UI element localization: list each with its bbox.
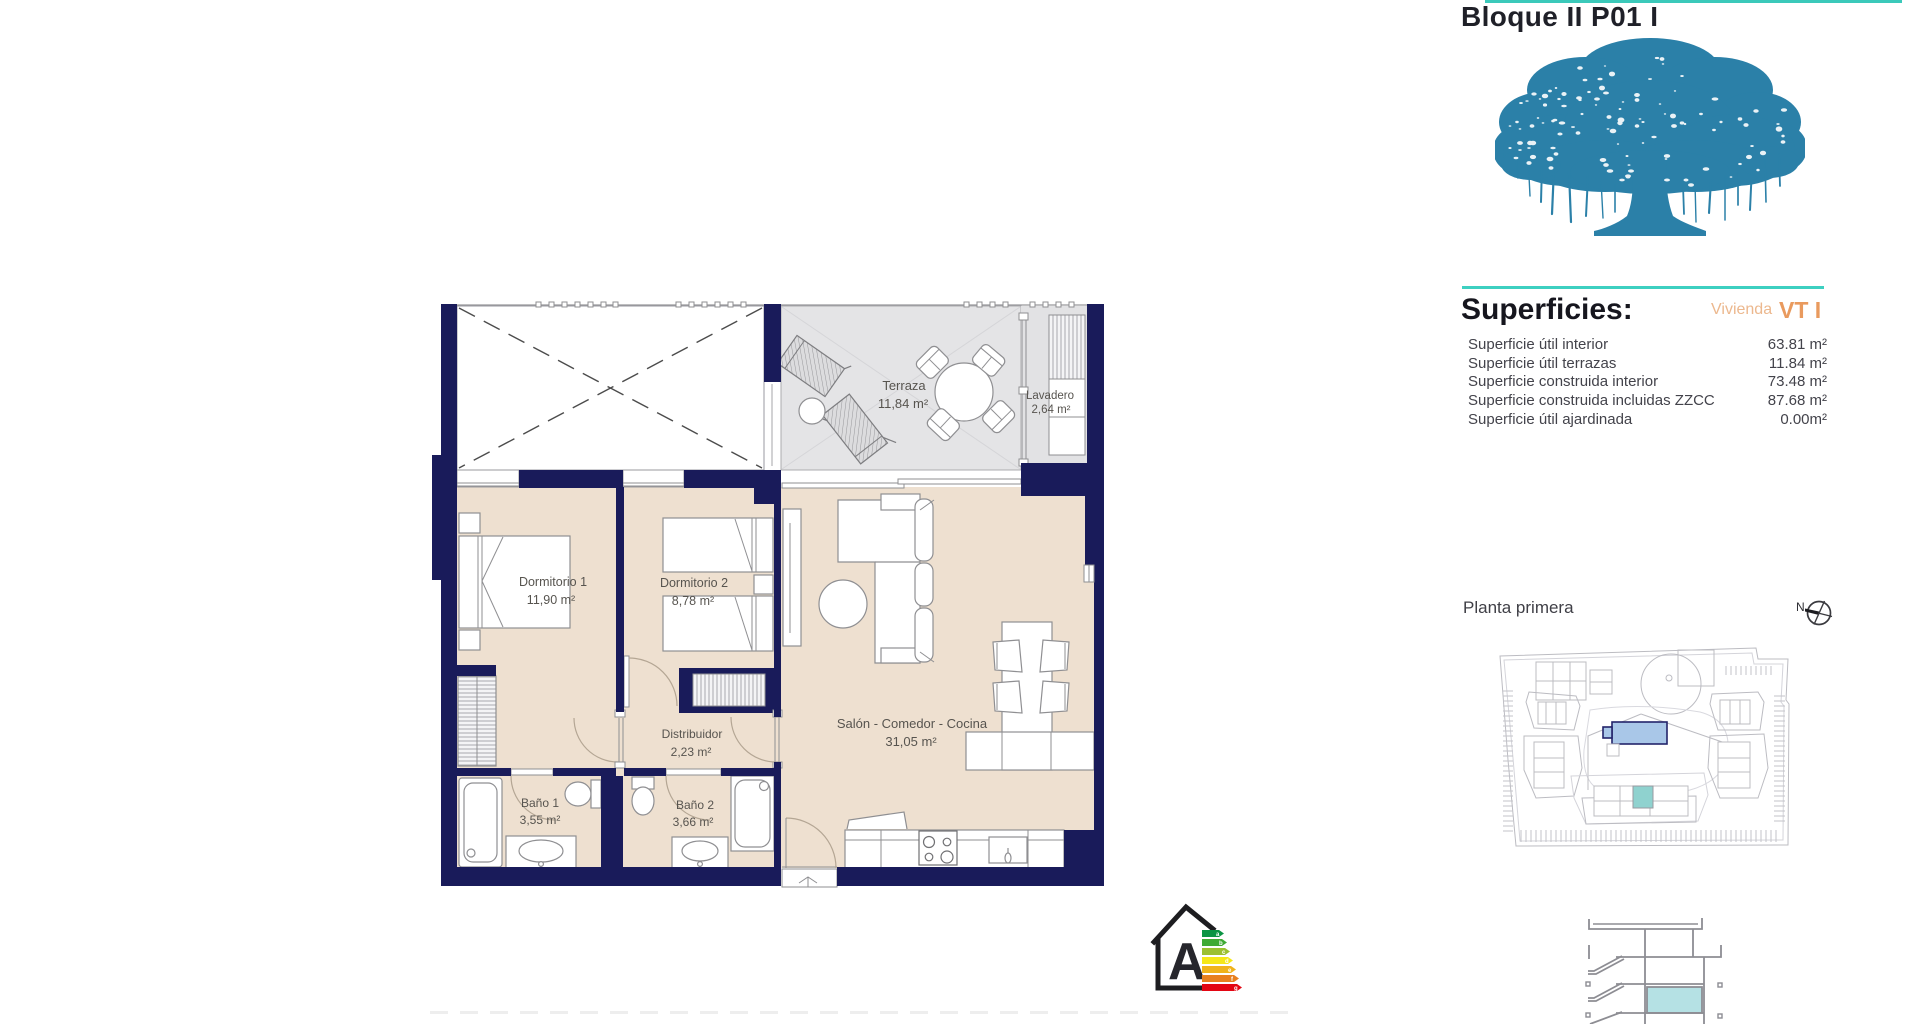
svg-text:8,78 m²: 8,78 m² (672, 594, 714, 608)
svg-text:Distribuidor: Distribuidor (662, 727, 723, 741)
svg-text:11,90 m²: 11,90 m² (527, 593, 575, 607)
svg-text:Dormitorio 2: Dormitorio 2 (660, 576, 728, 590)
svg-text:31,05 m²: 31,05 m² (885, 734, 937, 749)
svg-text:Dormitorio 1: Dormitorio 1 (519, 575, 587, 589)
svg-text:2,23 m²: 2,23 m² (671, 745, 712, 759)
svg-text:Baño 1: Baño 1 (521, 796, 559, 810)
svg-text:Lavadero: Lavadero (1026, 390, 1074, 402)
svg-text:Terraza: Terraza (882, 378, 926, 393)
svg-text:3,55 m²: 3,55 m² (520, 813, 561, 827)
svg-text:2,64 m²: 2,64 m² (1032, 404, 1071, 416)
svg-text:11,84 m²: 11,84 m² (878, 396, 929, 411)
svg-text:Baño 2: Baño 2 (676, 798, 714, 812)
svg-text:3,66 m²: 3,66 m² (673, 815, 714, 829)
svg-text:Salón - Comedor - Cocina: Salón - Comedor - Cocina (837, 716, 988, 731)
